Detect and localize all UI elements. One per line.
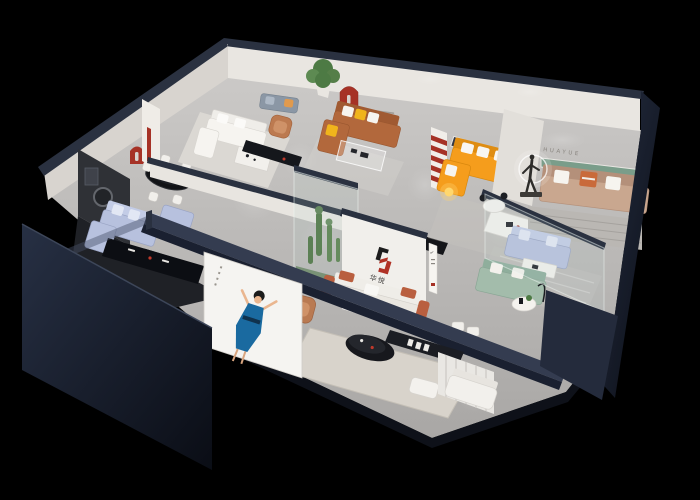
niche-figurine	[135, 152, 139, 161]
isometric-floorplan: HUAYUE	[0, 0, 700, 500]
console-logo-dot	[283, 158, 286, 161]
floor-lamp	[445, 188, 454, 197]
wall-washer-glow	[415, 73, 445, 85]
showroom-render: HUAYUE	[0, 0, 700, 500]
console-logo-dot	[148, 256, 151, 259]
niche-figurine	[347, 95, 351, 104]
vertical-sign: ✓	[429, 243, 437, 294]
wall-washer-glow	[515, 86, 545, 98]
wall-art-frame	[85, 168, 98, 185]
front-wall-endcap	[146, 210, 152, 230]
